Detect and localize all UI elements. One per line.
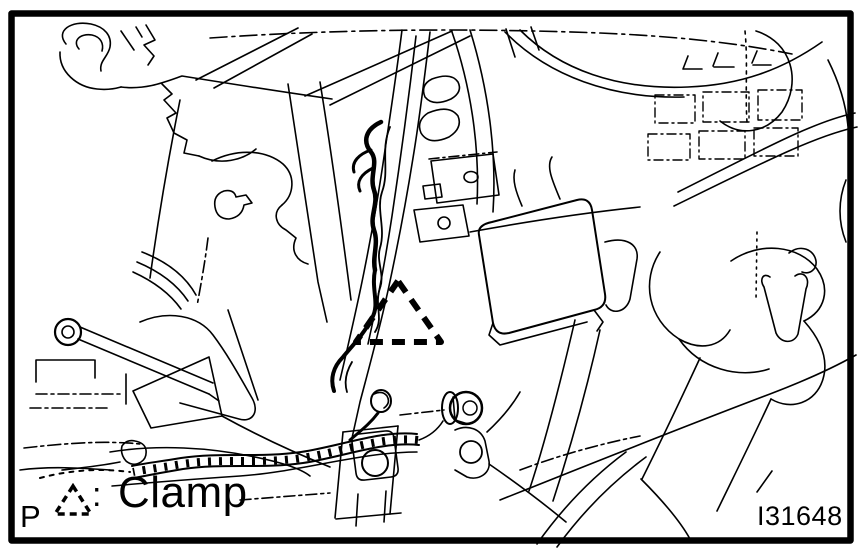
service-manual-figure: P : Clamp I31648 <box>0 0 864 554</box>
legend-label: Clamp <box>118 471 248 515</box>
harness-connector <box>420 109 460 141</box>
clamp-marker-triangle <box>356 281 441 342</box>
dashed-triangle-icon <box>52 483 94 517</box>
figure-code: I31648 <box>757 501 843 532</box>
mounting-bolt <box>400 392 566 522</box>
hook-bracket <box>762 274 808 341</box>
harness-connector <box>424 76 460 102</box>
junction-box <box>479 157 637 345</box>
legend-prefix: P <box>20 501 41 532</box>
pedal-assembly <box>20 310 330 478</box>
mounting-bracket <box>414 205 469 242</box>
legend-separator: : <box>92 478 101 512</box>
clamp-legend: P : Clamp <box>18 470 278 544</box>
rod-eyelet <box>55 319 81 345</box>
hvac-unit-linework <box>470 30 857 405</box>
brace-hole <box>362 450 388 476</box>
harness-clip <box>122 441 147 465</box>
